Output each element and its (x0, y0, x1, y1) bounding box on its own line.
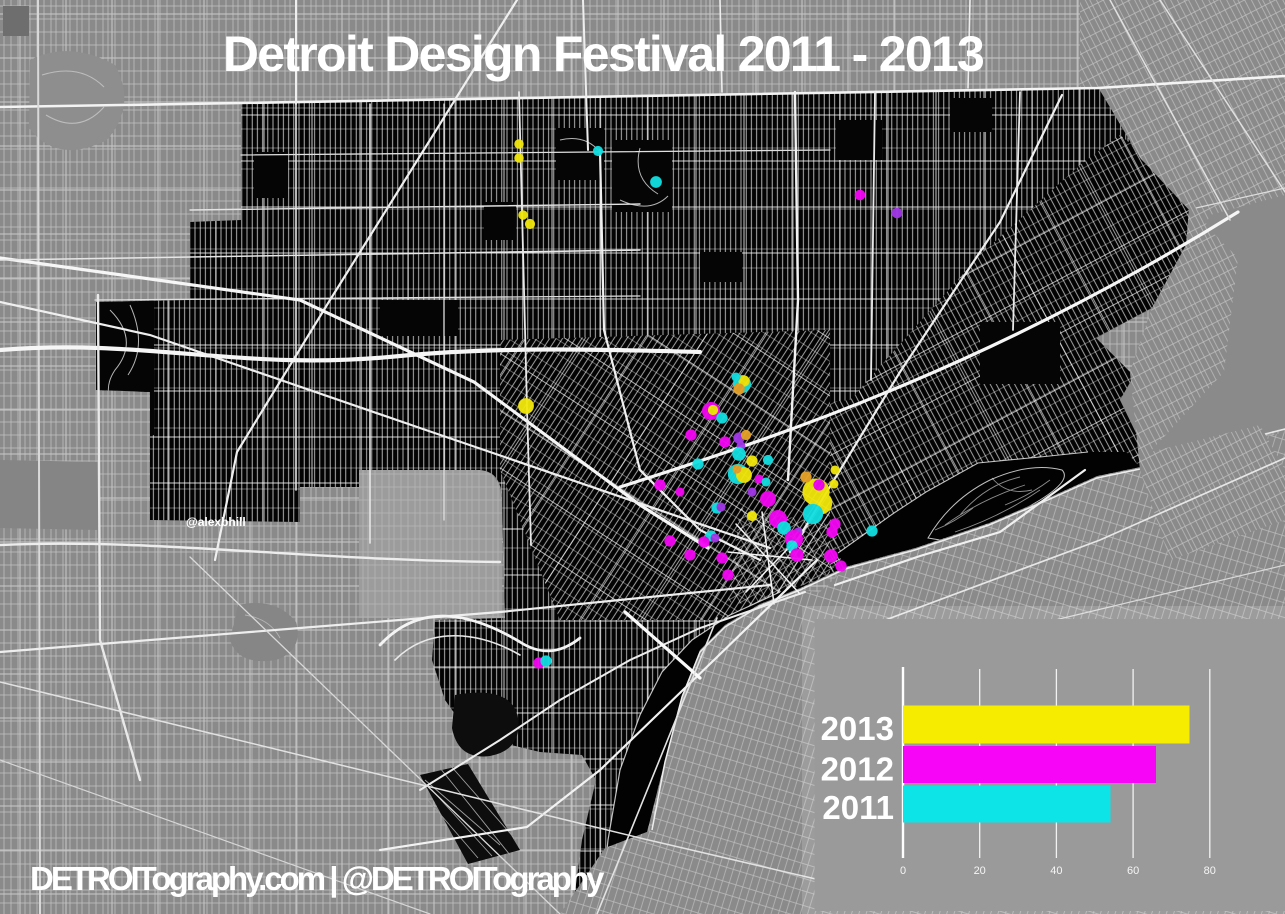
svg-text:DETROITography.com | @DETROITo: DETROITography.com | @DETROITography (30, 860, 605, 897)
svg-text:80: 80 (1204, 865, 1216, 877)
svg-text:2011: 2011 (822, 789, 894, 826)
svg-text:20: 20 (974, 865, 986, 877)
svg-text:@alexbhill: @alexbhill (186, 515, 246, 529)
svg-text:0: 0 (900, 865, 906, 877)
svg-text:Detroit Design Festival 2011 -: Detroit Design Festival 2011 - 2013 (223, 26, 983, 82)
svg-text:40: 40 (1050, 865, 1062, 877)
svg-text:60: 60 (1127, 865, 1139, 877)
svg-text:2012: 2012 (821, 751, 894, 788)
svg-text:2013: 2013 (821, 710, 894, 747)
